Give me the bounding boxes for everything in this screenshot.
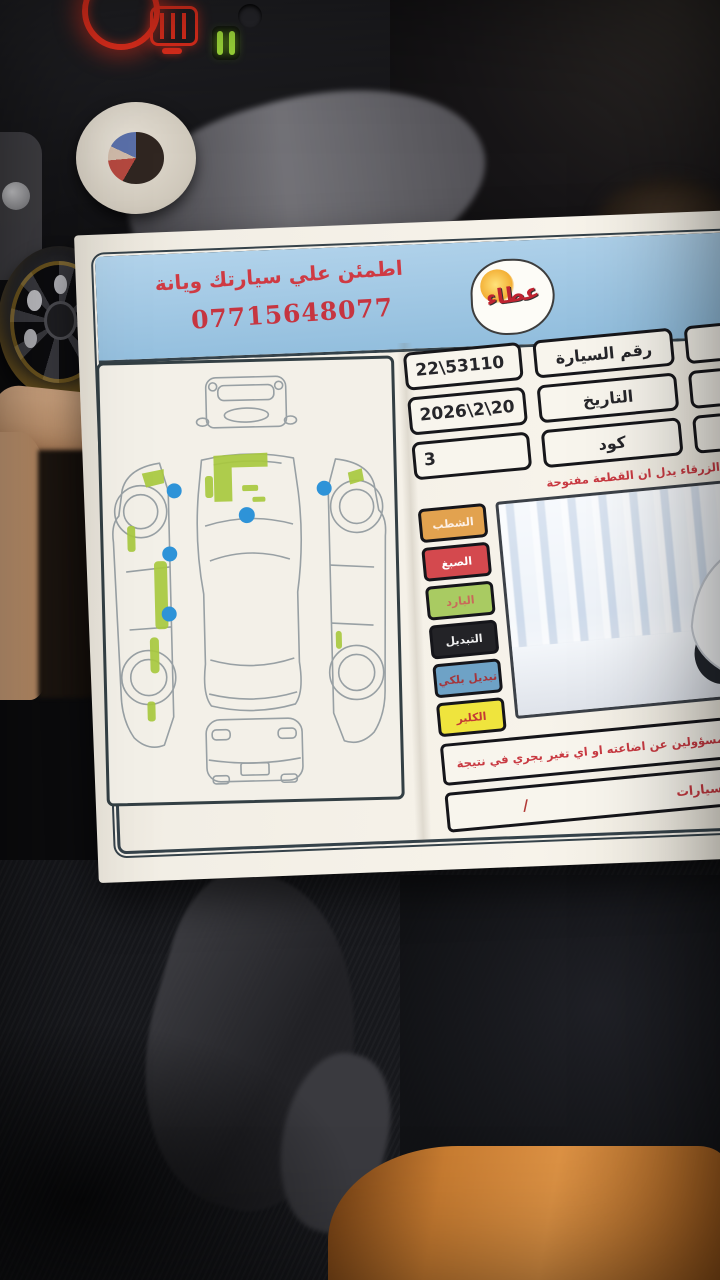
wheel-center-cap — [47, 304, 74, 337]
usb-port-green-light — [212, 26, 240, 60]
shop-phone-number: 07715648077 — [176, 292, 407, 336]
legend-plastic-replacement: تبديل بلكي — [432, 658, 503, 698]
code-label: كود — [541, 417, 684, 468]
night-car-interior-photo: اطمئن علي سيارتك ويانة 07715648077 عطاء … — [0, 0, 720, 1280]
console-button — [238, 4, 262, 28]
legend-cold-repair: البارد — [425, 581, 496, 621]
car-color: ابيض — [692, 402, 720, 454]
car-front-view — [195, 376, 296, 428]
shop-slogan: اطمئن علي سيارتك ويانة — [123, 254, 434, 298]
damage-legend: الشطب الصبغ البارد التبديل تبديل بلكي ال… — [418, 503, 507, 737]
tape-roll-core — [108, 132, 163, 184]
dealer-value: / — [522, 797, 529, 815]
vehicle-damage-diagram — [96, 355, 405, 806]
orange-fabric — [328, 1146, 720, 1280]
legend-clearcoat: الكلير — [436, 697, 507, 737]
tape-roll — [76, 102, 196, 214]
corner-shadow — [0, 1020, 360, 1280]
banner-right-line2: حديثة — [658, 277, 720, 328]
car-right-side-view — [324, 458, 390, 743]
code-value: 3 — [411, 431, 532, 480]
dealer-label: لمعارض السيارات — [676, 774, 720, 799]
legend-replacement: التبديل — [429, 619, 500, 659]
details-panel: 22\53110 رقم السيارة جمال حامد 2026\2\20… — [403, 312, 720, 834]
blue-dot-markers — [159, 480, 335, 622]
red-indicator-dash — [162, 48, 182, 54]
car-photo: 22 — [495, 467, 720, 719]
car-rear-view — [206, 718, 304, 784]
banner-right-line1: العطاء — [657, 233, 720, 284]
shop-logo: عطاء — [469, 257, 556, 336]
legend-sanding: الشطب — [418, 503, 489, 543]
speaker-knob — [2, 182, 30, 210]
defroster-icon — [150, 6, 198, 46]
diagram-svg — [99, 359, 402, 804]
date-value: 2026\2\20 — [407, 387, 528, 436]
legend-and-photo: الشطب الصبغ البارد التبديل تبديل بلكي ال… — [418, 467, 720, 738]
sheet-content: 22\53110 رقم السيارة جمال حامد 2026\2\20… — [93, 337, 720, 847]
legend-paint: الصبغ — [421, 542, 492, 582]
banner-right-text: العطاء حديثة — [657, 233, 720, 327]
inspection-sheet: اطمئن علي سيارتك ويانة 07715648077 عطاء … — [74, 209, 720, 883]
car-model: سبورتج — [688, 357, 720, 409]
date-label: التاريخ — [536, 372, 679, 423]
